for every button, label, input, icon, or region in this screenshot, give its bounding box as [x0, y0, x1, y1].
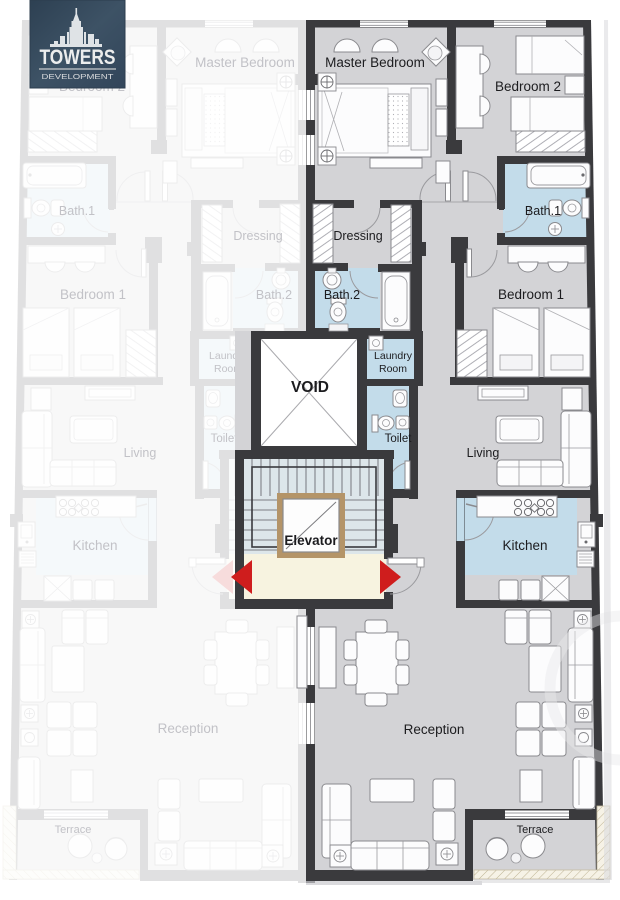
- svg-text:Dressing: Dressing: [333, 229, 382, 243]
- svg-text:Bedroom 1: Bedroom 1: [498, 287, 564, 302]
- svg-text:VOID: VOID: [291, 379, 329, 396]
- svg-text:Bath.2: Bath.2: [324, 288, 360, 302]
- svg-text:Bath.2: Bath.2: [256, 288, 292, 302]
- svg-text:Terrace: Terrace: [517, 824, 554, 836]
- svg-text:DEVELOPMENT: DEVELOPMENT: [42, 72, 115, 81]
- svg-text:Reception: Reception: [404, 722, 465, 737]
- svg-text:Bath.1: Bath.1: [59, 204, 95, 218]
- svg-text:Living: Living: [124, 446, 157, 460]
- svg-text:Terrace: Terrace: [55, 824, 92, 836]
- svg-text:Reception: Reception: [158, 721, 219, 736]
- svg-text:Toilet: Toilet: [211, 433, 239, 445]
- svg-text:Bath.1: Bath.1: [525, 204, 561, 218]
- svg-text:Kitchen: Kitchen: [72, 538, 117, 553]
- svg-text:Bedroom 2: Bedroom 2: [495, 79, 561, 94]
- svg-text:Laundry: Laundry: [374, 350, 413, 362]
- svg-text:Elevator: Elevator: [284, 533, 338, 548]
- svg-text:Master Bedroom: Master Bedroom: [195, 55, 295, 70]
- svg-text:Master Bedroom: Master Bedroom: [325, 55, 425, 70]
- svg-text:Room: Room: [379, 363, 407, 375]
- svg-text:TOWERS: TOWERS: [40, 46, 116, 69]
- svg-text:Living: Living: [467, 446, 500, 460]
- svg-text:Kitchen: Kitchen: [502, 538, 547, 553]
- svg-text:Toilet: Toilet: [385, 433, 413, 445]
- svg-text:Dressing: Dressing: [233, 229, 282, 243]
- svg-text:Bedroom 1: Bedroom 1: [60, 287, 126, 302]
